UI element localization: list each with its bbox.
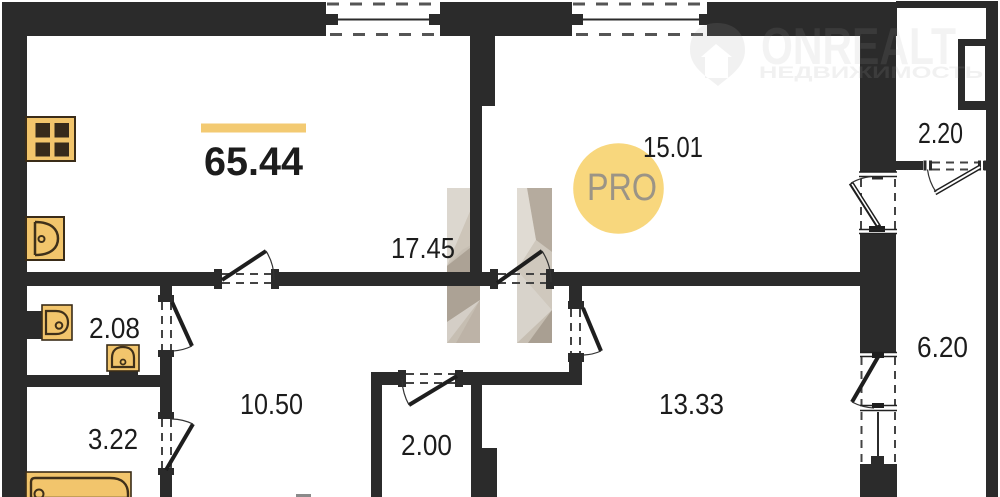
svg-text:17.45: 17.45	[391, 233, 455, 265]
svg-text:10.50: 10.50	[240, 389, 303, 421]
svg-text:3.22: 3.22	[88, 424, 138, 456]
svg-text:15.01: 15.01	[643, 132, 703, 164]
svg-text:НЕДВИЖИМОСТЬ: НЕДВИЖИМОСТЬ	[759, 64, 983, 82]
svg-text:13.33: 13.33	[659, 389, 724, 421]
svg-text:2.08: 2.08	[89, 313, 140, 345]
svg-text:6.20: 6.20	[917, 332, 968, 364]
svg-text:65.44: 65.44	[204, 140, 304, 184]
svg-text:PRO: PRO	[587, 167, 657, 209]
svg-text:2.20: 2.20	[918, 118, 963, 150]
svg-text:2.00: 2.00	[401, 430, 452, 462]
